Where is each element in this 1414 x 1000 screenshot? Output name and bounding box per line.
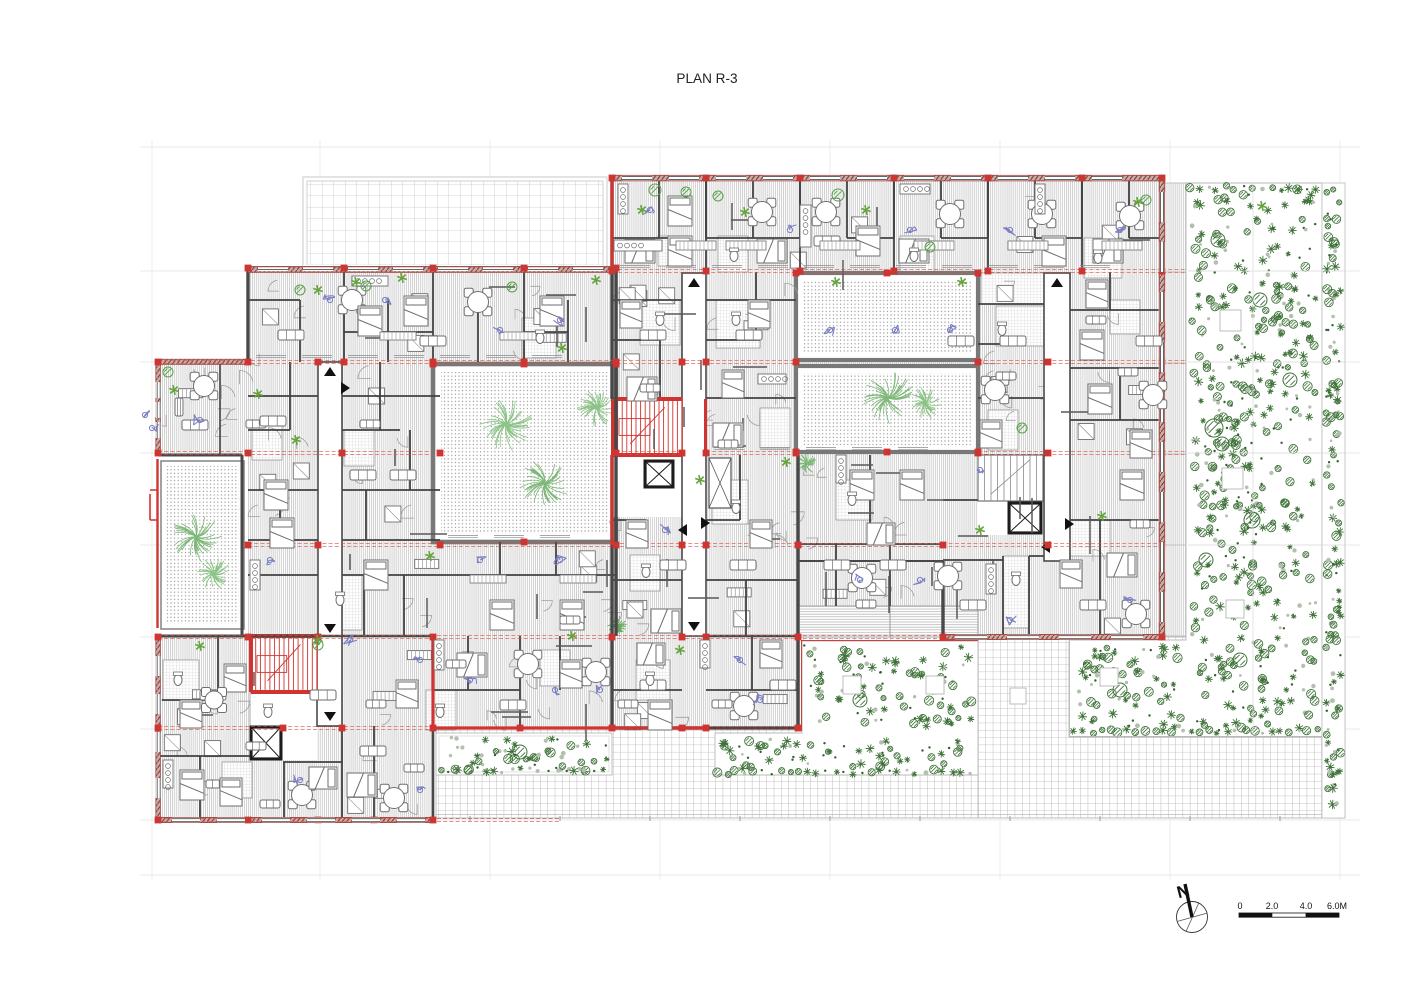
svg-text:2.0: 2.0 [1266,901,1279,911]
svg-text:6.0M: 6.0M [1327,901,1347,911]
svg-text:0: 0 [1237,901,1242,911]
svg-text:4.0: 4.0 [1300,901,1313,911]
svg-text:PLAN R-3: PLAN R-3 [676,71,737,86]
